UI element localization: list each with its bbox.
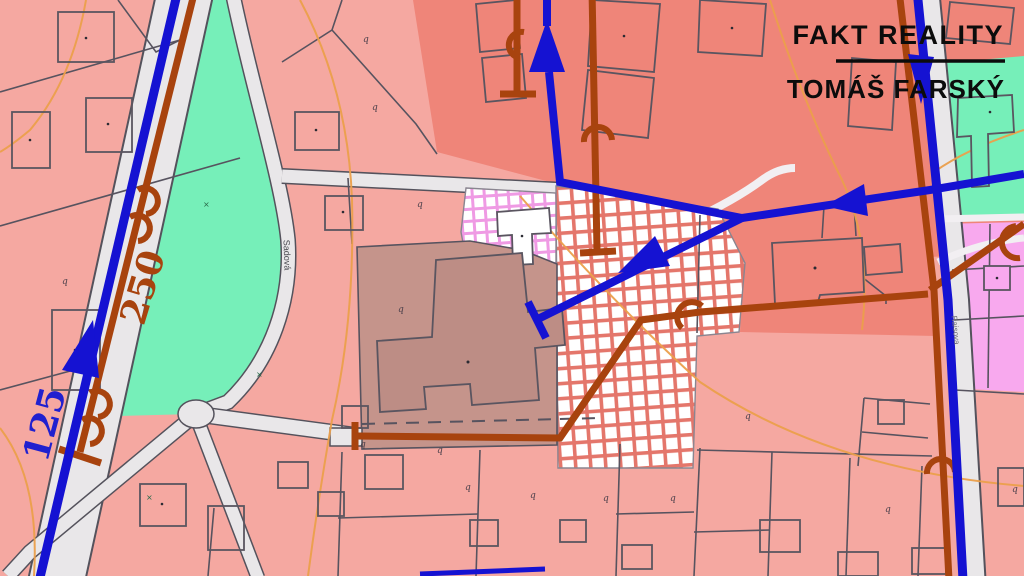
parcel-symbol: q [670,494,676,504]
meadow-symbol: × [146,493,153,502]
map-canvas: q q q q q q q q q q q q q q × × × 250 12… [0,0,1024,576]
parcel-symbol: q [62,277,68,287]
agent-name: TOMÁŠ FARSKÝ [787,74,1005,104]
parcel-symbol: q [885,505,891,515]
parcel-symbol: q [745,412,751,422]
meadow-symbol: × [256,370,263,379]
agency-name: FAKT REALITY [793,20,1005,50]
meadow-symbol: × [203,200,210,209]
parcel-symbol: q [372,103,378,113]
parcel-symbol: q [603,494,609,504]
parcel-symbol: q [360,440,366,450]
parcel-symbol: q [398,305,404,315]
parcel-symbol: q [437,446,443,456]
parcel-symbol: q [363,35,369,45]
parcel-symbol: q [465,483,471,493]
cadastral-map-screenshot: q q q q q q q q q q q q q q × × × 250 12… [0,0,1024,576]
parcel-symbol: q [417,200,423,210]
street-name-left: Sadová [281,240,292,271]
parcel-symbol: q [530,491,536,501]
parcel-symbol: q [1012,485,1018,495]
